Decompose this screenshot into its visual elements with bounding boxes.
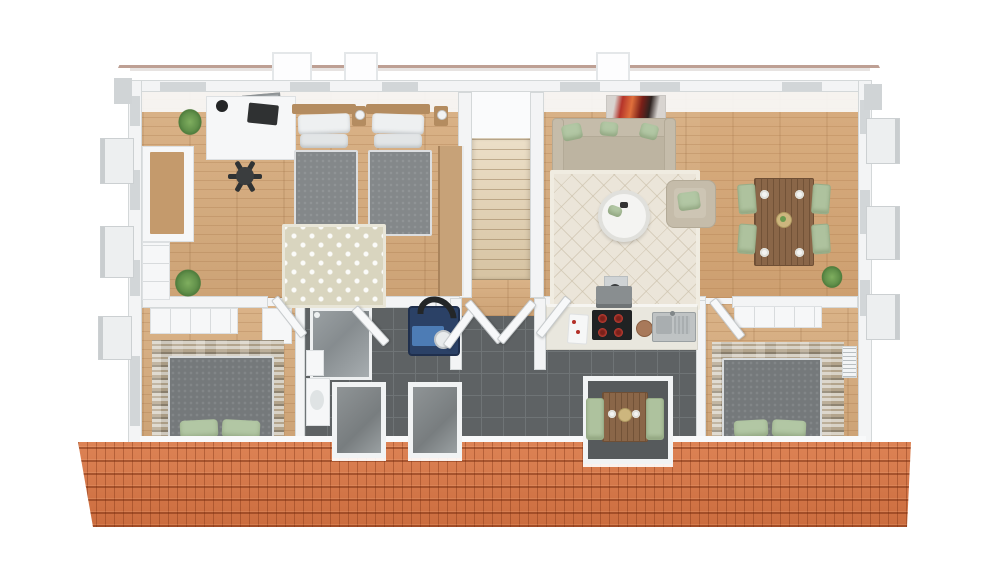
wardrobe-wood-top: [150, 152, 184, 234]
dining-plate-3: [760, 248, 769, 257]
kitchen-dormer-nook: [583, 376, 673, 464]
roof-skylight-1: [272, 52, 312, 80]
dormer-window-2: [408, 382, 462, 458]
coffee-table-decor: [620, 202, 628, 208]
exterior-wall-top: [128, 80, 872, 92]
bistro-plate-2: [632, 410, 640, 418]
bistro-chair-left: [586, 398, 604, 440]
bathroom-shelf: [306, 350, 324, 376]
sofa-cushion-2: [599, 121, 618, 137]
sink-basin-left: [656, 316, 672, 334]
bedA-pillow-1: [298, 113, 351, 135]
bedB-pillow-2: [374, 134, 422, 148]
window-box-right-2: [866, 206, 900, 260]
coffee-table: [598, 190, 650, 242]
dining-plate-4: [795, 248, 804, 257]
window-box-right-3: [866, 294, 900, 340]
plant-office-bottom: [168, 262, 208, 304]
window-box-right-1: [866, 118, 900, 164]
bistro-chair-right: [646, 398, 664, 440]
plant-office-top: [172, 102, 208, 142]
dining-chair-4: [811, 223, 831, 254]
rug-office-bedroom: [282, 224, 386, 308]
dining-plate-1: [760, 190, 769, 199]
top-window-1: [160, 82, 206, 91]
top-window-2: [290, 82, 330, 91]
dormer-window-1: [332, 382, 386, 458]
top-window-5: [640, 82, 680, 91]
plant-dining: [816, 260, 848, 294]
top-window-3: [382, 82, 418, 91]
burner-3: [598, 328, 607, 337]
dresser-bedroomLL: [150, 308, 238, 334]
roof-top-strip: [118, 22, 880, 68]
corner-post-top-right: [864, 84, 882, 110]
sink-faucet: [670, 311, 675, 316]
roof-bottom-strip: [78, 442, 911, 527]
roof-top-shadow: [130, 68, 870, 71]
burner-1: [598, 314, 607, 323]
stairwell-wall-right: [530, 92, 544, 298]
sink-drainer: [674, 316, 690, 334]
desk-monitor: [247, 102, 279, 125]
top-window-4: [560, 82, 600, 91]
desk-lamp: [216, 100, 228, 112]
top-window-6: [782, 82, 822, 91]
dining-chair-1: [737, 183, 757, 214]
cutting-board-food-2: [576, 330, 580, 334]
dining-plate-2: [795, 190, 804, 199]
nightstand-lamp-left: [355, 110, 365, 120]
stair-landing: [472, 92, 530, 138]
wardrobe-bedroomLR: [734, 306, 822, 328]
burner-2: [614, 314, 623, 323]
dining-bowl-greens: [780, 216, 786, 222]
cabinet-left: [142, 242, 170, 300]
shower-head: [314, 312, 320, 318]
bedB-pillow-1: [372, 113, 425, 135]
nightstand-lamp-right: [437, 110, 447, 120]
sofa-arm-right: [664, 118, 676, 176]
window-box-left-1: [100, 138, 134, 184]
cutting-board: [567, 313, 589, 344]
range-hood: [596, 286, 632, 308]
corner-post-top-left: [114, 78, 132, 104]
bistro-plate-1: [608, 410, 616, 418]
window-box-left-2: [100, 226, 134, 278]
burner-4: [614, 328, 623, 337]
cooktop: [592, 310, 632, 340]
bistro-bowl: [618, 408, 632, 422]
wardrobe-tall-wood: [438, 146, 464, 296]
sofa-seat: [558, 136, 670, 172]
radiator: [842, 346, 857, 378]
ceiling-band-living: [544, 92, 858, 112]
roof-skylight-2: [344, 52, 378, 80]
roof-skylight-3: [596, 52, 630, 80]
dining-chair-2: [737, 223, 757, 254]
bedA-pillow-2: [300, 134, 348, 148]
window-box-left-3: [98, 316, 132, 360]
cutting-board-food-1: [572, 320, 576, 324]
left-wall-panel: [130, 356, 140, 426]
office-chair-seat: [236, 167, 254, 185]
round-board: [636, 320, 653, 337]
staircase: [472, 138, 530, 280]
floorplan-render: [0, 0, 1000, 562]
armchair-cushion: [677, 191, 701, 212]
dining-chair-3: [811, 183, 831, 214]
vanity-basin: [310, 390, 324, 410]
